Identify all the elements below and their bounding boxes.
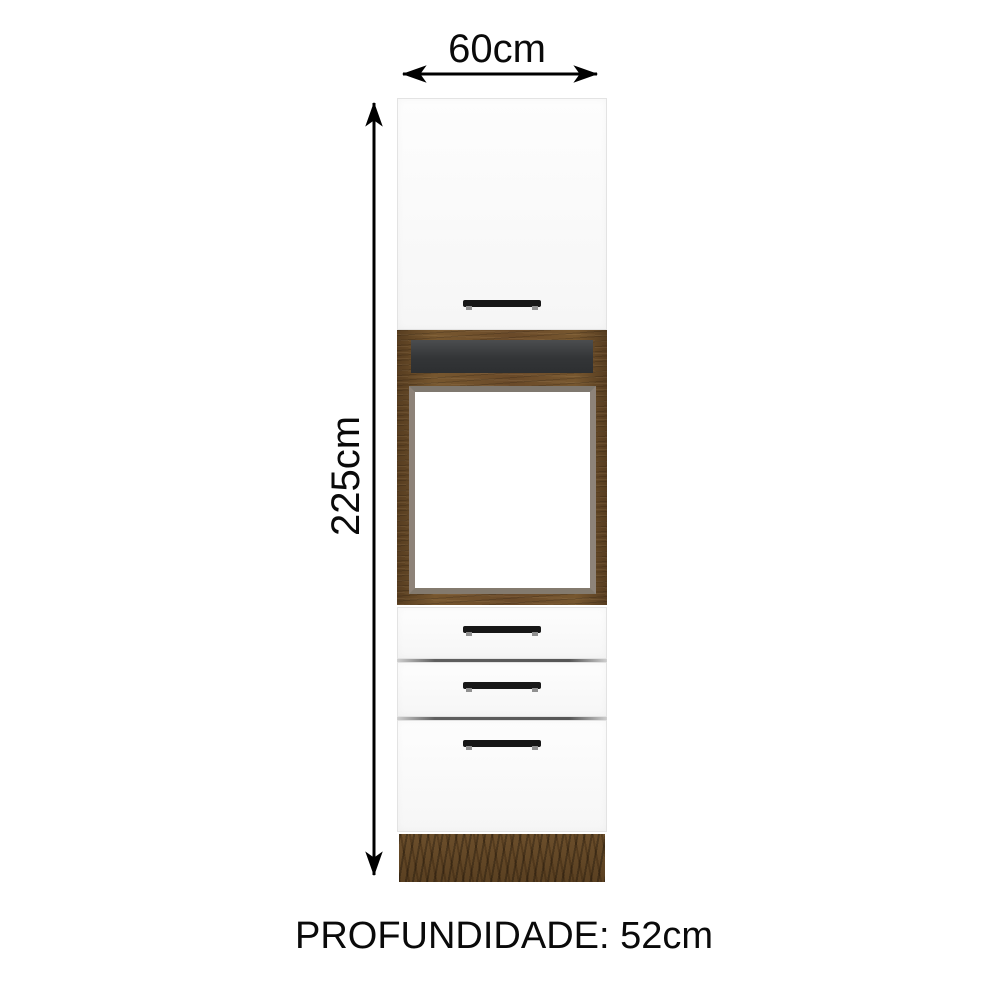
drawer-2-handle	[463, 682, 541, 689]
upper-door-handle	[463, 300, 541, 307]
cabinet-dimension-diagram: 60cm 225cm 63cm PROFUNDIDADE: 52cm	[0, 0, 1000, 1000]
width-dimension-label: 60cm	[448, 29, 546, 69]
oven-tower-wood-frame	[397, 330, 607, 605]
depth-label: PROFUNDIDADE: 52cm	[295, 917, 713, 955]
upper-door-panel	[397, 98, 607, 330]
oven-cavity	[409, 386, 596, 594]
drawer-1	[397, 607, 607, 659]
cabinet	[397, 98, 607, 882]
drawer-2	[397, 662, 607, 717]
plinth-base	[399, 834, 605, 882]
drawer-3	[397, 720, 607, 832]
height-dimension-label: 225cm	[326, 416, 366, 536]
drawer-3-handle	[463, 740, 541, 747]
open-niche	[411, 340, 593, 373]
drawer-1-handle	[463, 626, 541, 633]
